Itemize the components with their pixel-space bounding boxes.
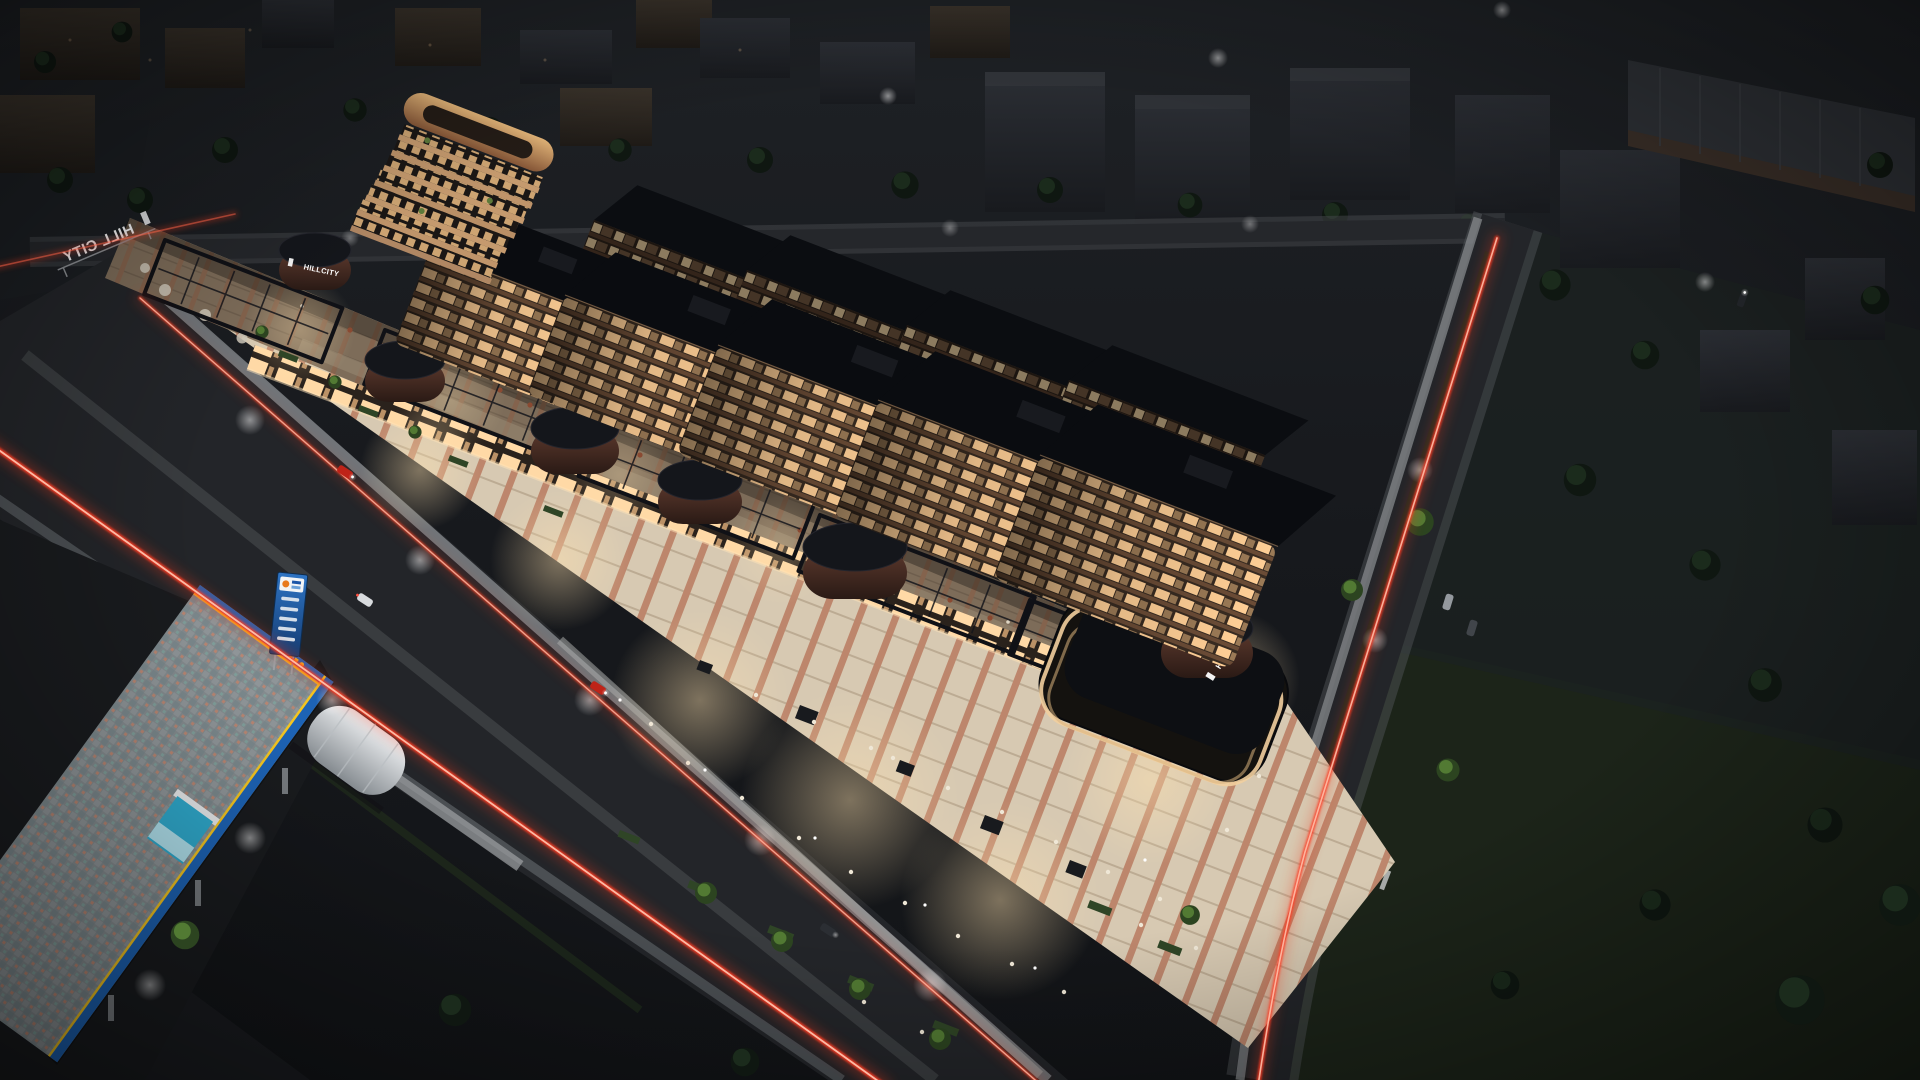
hill-city-rendering: HILLCITY bbox=[0, 0, 1920, 1080]
night-vignette bbox=[0, 0, 1920, 1080]
rendering-stage: HILLCITY bbox=[0, 0, 1920, 1080]
